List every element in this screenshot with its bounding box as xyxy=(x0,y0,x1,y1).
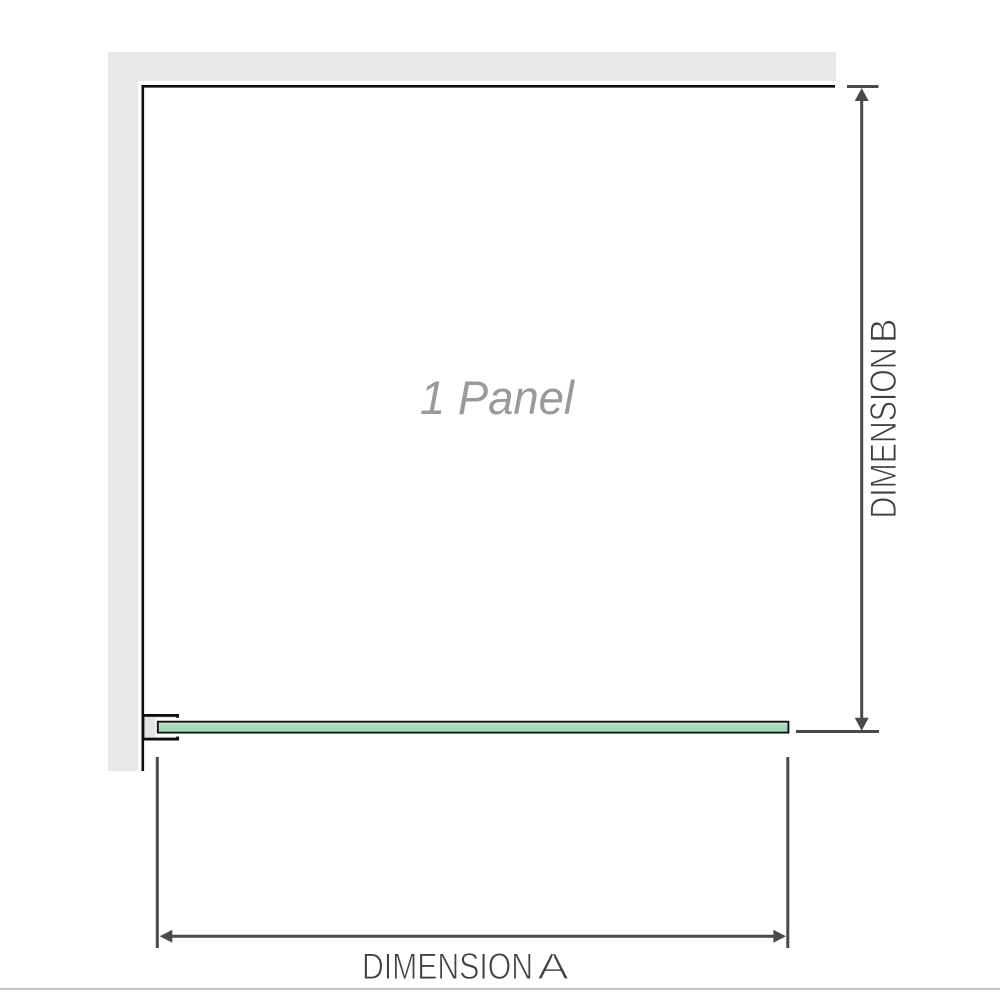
svg-text:DIMENSION: DIMENSION xyxy=(362,946,533,987)
svg-text:B: B xyxy=(863,318,904,343)
svg-text:1 Panel: 1 Panel xyxy=(420,371,576,424)
svg-text:DIMENSION: DIMENSION xyxy=(863,348,904,519)
svg-text:A: A xyxy=(537,946,569,987)
